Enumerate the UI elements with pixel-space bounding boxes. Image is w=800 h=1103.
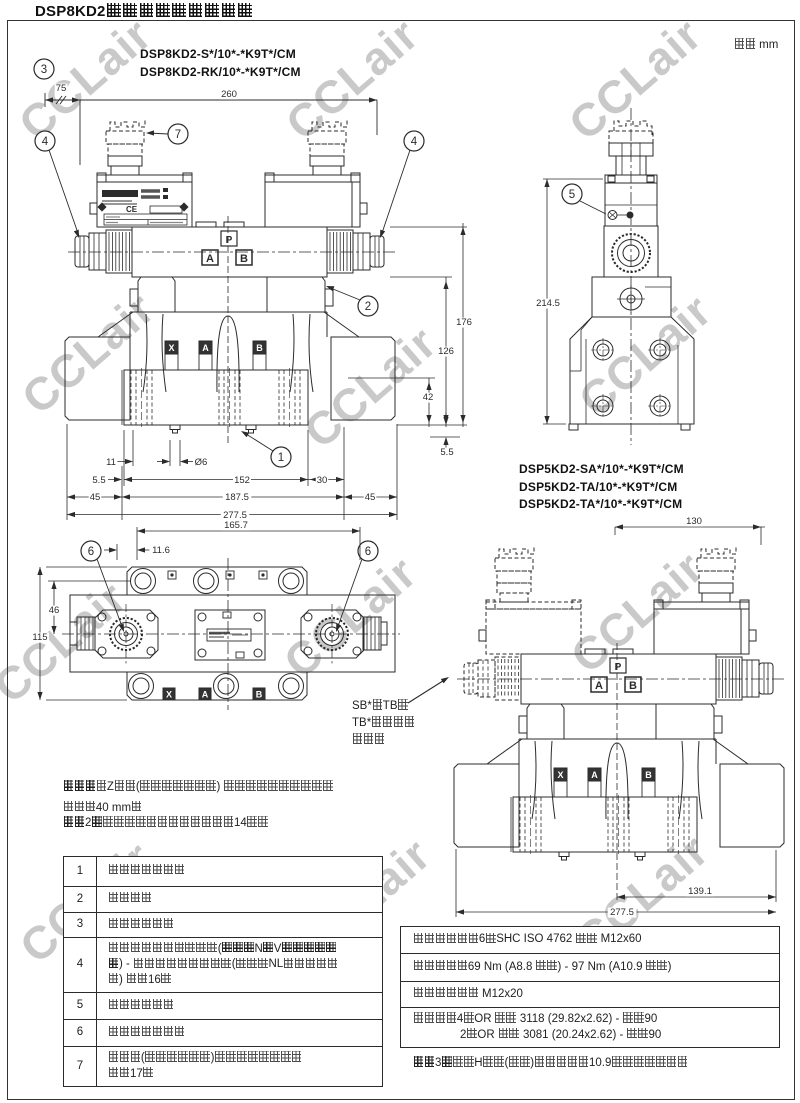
svg-text:1: 1 xyxy=(278,452,284,464)
svg-text:6: 6 xyxy=(365,546,371,558)
svg-text:214.5: 214.5 xyxy=(536,298,560,309)
svg-text:165.7: 165.7 xyxy=(224,520,248,531)
svg-text:A: A xyxy=(202,343,209,353)
svg-text:B: B xyxy=(629,680,637,692)
svg-text:139.1: 139.1 xyxy=(688,886,712,897)
svg-text:42: 42 xyxy=(423,392,434,403)
svg-text:187.5: 187.5 xyxy=(225,492,249,503)
svg-text:277.5: 277.5 xyxy=(610,907,634,918)
svg-text:6: 6 xyxy=(88,546,94,558)
svg-text:4: 4 xyxy=(42,136,49,148)
svg-text:A: A xyxy=(591,770,598,780)
svg-text:260: 260 xyxy=(221,89,237,100)
svg-text:X: X xyxy=(166,690,172,700)
svg-text:115: 115 xyxy=(32,632,47,643)
svg-text:A: A xyxy=(202,690,209,700)
svg-text:45: 45 xyxy=(90,492,101,503)
svg-text:B: B xyxy=(256,343,263,353)
svg-text:B: B xyxy=(240,253,248,265)
svg-text:11: 11 xyxy=(106,457,116,468)
svg-text:X: X xyxy=(557,770,563,780)
svg-text:Ø6: Ø6 xyxy=(195,457,208,468)
svg-text:5.5: 5.5 xyxy=(440,447,453,458)
svg-text:5: 5 xyxy=(569,189,575,201)
svg-text:3: 3 xyxy=(41,64,47,76)
svg-text:126: 126 xyxy=(438,346,454,357)
svg-text:152: 152 xyxy=(234,475,250,486)
svg-text:P: P xyxy=(615,662,622,673)
svg-text:7: 7 xyxy=(175,129,181,141)
svg-text:75: 75 xyxy=(56,83,67,94)
svg-text:4: 4 xyxy=(411,136,418,148)
svg-text:B: B xyxy=(645,770,652,780)
svg-text:5.5: 5.5 xyxy=(92,475,105,486)
svg-text:X: X xyxy=(168,343,174,353)
svg-text:2: 2 xyxy=(365,301,371,313)
svg-text:46: 46 xyxy=(49,605,60,616)
svg-text:B: B xyxy=(256,690,263,700)
svg-text:176: 176 xyxy=(456,317,472,328)
svg-text:P: P xyxy=(226,235,233,246)
svg-text:A: A xyxy=(595,680,603,692)
svg-text:CE: CE xyxy=(126,205,138,214)
svg-text:130: 130 xyxy=(686,516,702,527)
svg-text:11.6: 11.6 xyxy=(152,545,170,556)
svg-text:30: 30 xyxy=(317,475,328,486)
svg-text:45: 45 xyxy=(365,492,376,503)
svg-text:A: A xyxy=(206,253,214,265)
